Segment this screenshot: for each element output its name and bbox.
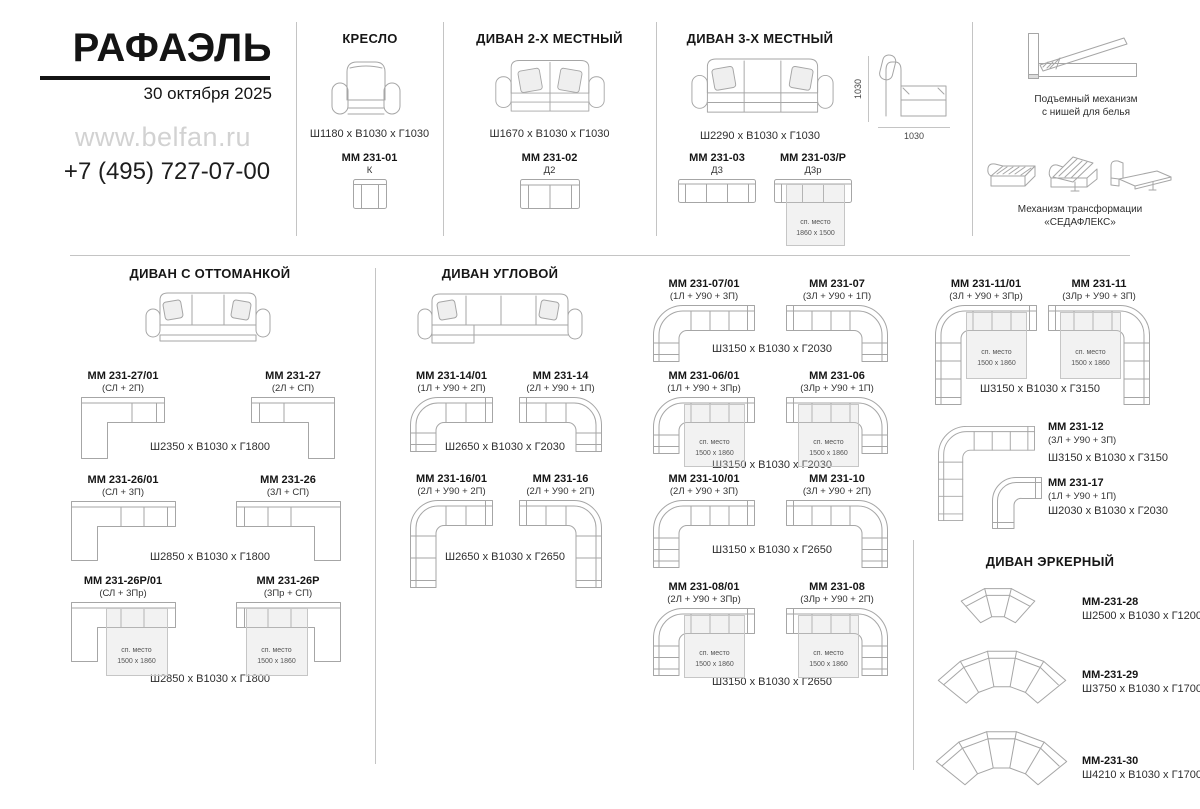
- bay-schematic-mm231-28: [958, 586, 1038, 624]
- dimension-line-vertical: [868, 56, 869, 122]
- section-title-corner: ДИВАН УГЛОВОЙ: [380, 266, 620, 281]
- model-code: ММ 231-17: [1048, 477, 1198, 489]
- model-code: ММ 231-03/Р: [763, 152, 863, 164]
- section-title-ottoman: ДИВАН С ОТТОМАНКОЙ: [60, 266, 360, 281]
- sleeping-area-size: 1500 x 1860: [1071, 358, 1110, 369]
- sleeping-area-label: сп. место: [699, 437, 729, 448]
- model-config: (2Л + У90 + 3Пр): [653, 594, 755, 605]
- catalog-item-mm231-08-01: ММ 231-08/01 (2Л + У90 + 3Пр) сп. место …: [653, 581, 755, 681]
- model-config: К: [296, 165, 443, 176]
- top-view-schematic: [520, 179, 580, 209]
- brand-title: РАФАЭЛЬ: [40, 26, 272, 71]
- catalog-item-mm231-01: ММ 231-01 К: [296, 152, 443, 214]
- top-view-schematic: [519, 500, 602, 588]
- model-config: (3Пр + СП): [228, 588, 348, 599]
- catalog-page: РАФАЭЛЬ 30 октября 2025 www.belfan.ru +7…: [0, 0, 1200, 809]
- section-title-bay: ДИВАН ЭРКЕРНЫЙ: [920, 554, 1180, 569]
- catalog-date: 30 октября 2025: [40, 84, 272, 104]
- model-code: ММ 231-27/01: [63, 370, 183, 382]
- model-code: ММ 231-02: [447, 152, 652, 164]
- sleeping-area: сп. место 1500 x 1860: [1060, 312, 1121, 379]
- section-title-armchair: КРЕСЛО: [300, 31, 440, 46]
- top-view-schematic: [410, 500, 493, 588]
- top-view-schematic: сп. место 1500 x 1860: [653, 608, 755, 676]
- model-config: (2Л + СП): [233, 383, 353, 394]
- sleeping-area: сп. место 1500 x 1860: [106, 608, 168, 676]
- side-height-label: 1030: [853, 74, 863, 104]
- sleeping-area: сп. место 1500 x 1860: [246, 608, 308, 676]
- catalog-item-mm231-03: ММ 231-03 Д3: [672, 152, 762, 208]
- sedaflex-mechanism-drawing: [985, 152, 1175, 194]
- model-code: ММ 231-11: [1048, 278, 1150, 290]
- sleeping-area-label: сп. место: [699, 648, 729, 659]
- model-config: (1Л + У90 + 3Пр): [653, 383, 755, 394]
- lift-mechanism-caption: Подъемный механизм: [986, 94, 1186, 105]
- model-code: ММ 231-12: [1048, 421, 1198, 433]
- model-code: ММ 231-08/01: [653, 581, 755, 593]
- sleeping-area: сп. место 1500 x 1860: [798, 404, 859, 467]
- pair-dimensions: Ш3150 x В1030 x Г2030: [682, 343, 862, 355]
- top-view-schematic: сп. место 1500 x 1860: [786, 397, 888, 454]
- catalog-item-mm231-16-01: ММ 231-16/01 (2Л + У90 + 2П): [410, 473, 493, 593]
- model-code: ММ-231-28: [1082, 596, 1197, 608]
- model-code: ММ 231-06: [786, 370, 888, 382]
- sleeping-area-size: 1500 x 1860: [809, 659, 848, 670]
- sleeping-area: сп. место 1500 x 1860: [684, 404, 745, 467]
- top-view-schematic: [353, 179, 387, 209]
- pair-dimensions: Ш2850 x В1030 x Г1800: [110, 551, 310, 563]
- model-config: (1Л + У90 + 3П): [653, 291, 755, 302]
- bay-schematic-mm231-29: [937, 646, 1067, 704]
- catalog-item-mm231-02: ММ 231-02 Д2: [447, 152, 652, 214]
- pair-dimensions: Ш2350 x В1030 x Г1800: [110, 441, 310, 453]
- divider: [443, 22, 444, 236]
- catalog-item-mm231-06-01: ММ 231-06/01 (1Л + У90 + 3Пр) сп. место …: [653, 370, 755, 459]
- model-code: ММ 231-26Р: [228, 575, 348, 587]
- pair-dimensions: Ш2650 x В1030 x Г2030: [415, 441, 595, 453]
- top-view-schematic: сп. место 1500 x 1860: [786, 608, 888, 676]
- divider: [656, 22, 657, 236]
- website-text: www.belfan.ru: [63, 122, 263, 153]
- sofa3-side-view: [876, 52, 950, 122]
- top-view-schematic: сп. место 1860 x 1500: [774, 179, 852, 203]
- model-config: (1Л + У90 + 2П): [410, 383, 493, 394]
- model-code: ММ 231-26/01: [63, 474, 183, 486]
- dimension-line-horizontal: [878, 127, 950, 128]
- model-config: (3Лр + У90 + 1П): [786, 383, 888, 394]
- model-code: ММ 231-26Р/01: [63, 575, 183, 587]
- model-code: ММ 231-07: [786, 278, 888, 290]
- sofa2-front-view: [494, 55, 606, 122]
- model-code: ММ-231-30: [1082, 755, 1197, 767]
- sleeping-area-label: сп. место: [800, 217, 830, 228]
- model-code: ММ 231-08: [786, 581, 888, 593]
- model-config: (2Л + У90 + 3П): [653, 486, 755, 497]
- sleeping-area-size: 1500 x 1860: [257, 656, 296, 667]
- armchair-front-view: [330, 56, 402, 124]
- model-code: ММ 231-10: [786, 473, 888, 485]
- top-view-schematic: сп. место 1500 x 1860: [71, 602, 176, 662]
- brand-underline: [40, 76, 270, 80]
- side-depth-label: 1030: [878, 131, 950, 141]
- sleeping-area-label: сп. место: [981, 347, 1011, 358]
- divider: [375, 268, 376, 764]
- sofa3-dimensions: Ш2290 x В1030 x Г1030: [660, 130, 860, 142]
- sleeping-area-size: 1500 x 1860: [809, 448, 848, 459]
- model-config: (3Лр + У90 + 3П): [1048, 291, 1150, 302]
- model-config: (3Лр + У90 + 2П): [786, 594, 888, 605]
- top-view-schematic: сп. место 1500 x 1860: [653, 397, 755, 454]
- model-code: ММ 231-10/01: [653, 473, 755, 485]
- model-config: Д2: [447, 165, 652, 176]
- ottoman-front-view: [144, 289, 272, 347]
- model-dimensions: Ш3750 x В1030 x Г1700: [1082, 683, 1197, 695]
- catalog-item-mm231-06: ММ 231-06 (3Лр + У90 + 1П) сп. место 150…: [786, 370, 888, 459]
- phone-number: +7 (495) 727-07-00: [52, 158, 282, 186]
- sleeping-area-size: 1860 x 1500: [796, 228, 835, 239]
- lift-mechanism-drawing: [1026, 32, 1138, 82]
- model-dimensions: Ш2030 x В1030 x Г2030: [1048, 505, 1198, 517]
- catalog-item-mm231-16: ММ 231-16 (2Л + У90 + 2П): [519, 473, 602, 593]
- model-code: ММ 231-27: [233, 370, 353, 382]
- model-config: (2Л + У90 + 2П): [410, 486, 493, 497]
- sleeping-area-size: 1500 x 1860: [695, 448, 734, 459]
- sleeping-area-label: сп. место: [261, 645, 291, 656]
- model-config: Д3р: [763, 165, 863, 176]
- model-code: ММ 231-01: [296, 152, 443, 164]
- top-view-schematic: [678, 179, 756, 203]
- model-config: (СЛ + 3Пр): [63, 588, 183, 599]
- model-config: (3Л + У90 + 3П): [1048, 435, 1198, 446]
- model-config: (3Л + СП): [228, 487, 348, 498]
- sleeping-area-size: 1500 x 1860: [695, 659, 734, 670]
- model-config: (3Л + У90 + 1П): [786, 291, 888, 302]
- corner-front-view: [416, 291, 584, 347]
- section-title-sofa3: ДИВАН 3-Х МЕСТНЫЙ: [660, 31, 860, 46]
- sofa3-front-view: [690, 54, 835, 122]
- catalog-item-mm231-10: ММ 231-10 (3Л + У90 + 2П): [786, 473, 888, 573]
- model-dimensions: Ш2500 x В1030 x Г1200: [1082, 610, 1197, 622]
- section-title-sofa2: ДИВАН 2-Х МЕСТНЫЙ: [447, 31, 652, 46]
- catalog-item-mm231-26r-01: ММ 231-26Р/01 (СЛ + 3Пр) сп. место 1500 …: [63, 575, 183, 667]
- model-config: (2Л + У90 + 2П): [519, 486, 602, 497]
- model-code: ММ 231-16/01: [410, 473, 493, 485]
- model-code: ММ-231-29: [1082, 669, 1197, 681]
- sofa2-dimensions: Ш1670 x В1030 x Г1030: [447, 128, 652, 140]
- model-code: ММ 231-14: [519, 370, 602, 382]
- armchair-dimensions: Ш1180 x В1030 x Г1030: [296, 128, 443, 140]
- catalog-item-mm231-08: ММ 231-08 (3Лр + У90 + 2П) сп. место 150…: [786, 581, 888, 681]
- sleeping-area-label: сп. место: [1075, 347, 1105, 358]
- model-config: (3Л + У90 + 3Пр): [935, 291, 1037, 302]
- model-config: (1Л + У90 + 1П): [1048, 491, 1198, 502]
- model-config: (3Л + У90 + 2П): [786, 486, 888, 497]
- divider: [70, 255, 1130, 256]
- top-view-schematic: сп. место 1500 x 1860: [236, 602, 341, 662]
- model-code: ММ 231-14/01: [410, 370, 493, 382]
- model-code: ММ 231-11/01: [935, 278, 1037, 290]
- sleeping-area-label: сп. место: [813, 437, 843, 448]
- transform-mechanism-caption2: «СЕДАФЛЕКС»: [980, 217, 1180, 228]
- model-dimensions: Ш4210 x В1030 x Г1700: [1082, 769, 1197, 781]
- catalog-item-mm231-26r: ММ 231-26Р (3Пр + СП) сп. место 1500 x 1…: [228, 575, 348, 667]
- sleeping-area-label: сп. место: [813, 648, 843, 659]
- divider: [913, 540, 914, 770]
- sleeping-area: сп. место 1860 x 1500: [786, 184, 845, 246]
- pair-dimensions: Ш2650 x В1030 x Г2650: [415, 551, 595, 563]
- sleeping-area: сп. место 1500 x 1860: [684, 615, 745, 678]
- bay-schematic-mm231-30: [935, 726, 1068, 786]
- model-code: ММ 231-16: [519, 473, 602, 485]
- sleeping-area-size: 1500 x 1860: [117, 656, 156, 667]
- catalog-item-mm231-10-01: ММ 231-10/01 (2Л + У90 + 3П): [653, 473, 755, 573]
- model-config: (СЛ + 2П): [63, 383, 183, 394]
- transform-mechanism-caption: Механизм трансформации: [980, 204, 1180, 215]
- sleeping-area: сп. место 1500 x 1860: [966, 312, 1027, 379]
- pair-dimensions: Ш3150 x В1030 x Г2650: [682, 544, 862, 556]
- divider: [972, 22, 973, 236]
- model-code: ММ 231-26: [228, 474, 348, 486]
- sleeping-area-size: 1500 x 1860: [977, 358, 1016, 369]
- top-view-schematic: [653, 500, 755, 568]
- model-code: ММ 231-03: [672, 152, 762, 164]
- model-code: ММ 231-06/01: [653, 370, 755, 382]
- top-view-schematic: [786, 500, 888, 568]
- model-code: ММ 231-07/01: [653, 278, 755, 290]
- model-config: Д3: [672, 165, 762, 176]
- model-dimensions: Ш3150 x В1030 x Г3150: [1048, 452, 1198, 464]
- sleeping-area: сп. место 1500 x 1860: [798, 615, 859, 678]
- top-view-schematic-mm231-17: [992, 477, 1042, 529]
- sleeping-area-label: сп. место: [121, 645, 151, 656]
- model-config: (2Л + У90 + 1П): [519, 383, 602, 394]
- model-config: (СЛ + 3П): [63, 487, 183, 498]
- lift-mechanism-caption2: с нишей для белья: [986, 107, 1186, 118]
- catalog-item-mm231-03r: ММ 231-03/Р Д3р сп. место 1860 x 1500: [763, 152, 863, 208]
- pair-dimensions: Ш3150 x В1030 x Г3150: [950, 383, 1130, 395]
